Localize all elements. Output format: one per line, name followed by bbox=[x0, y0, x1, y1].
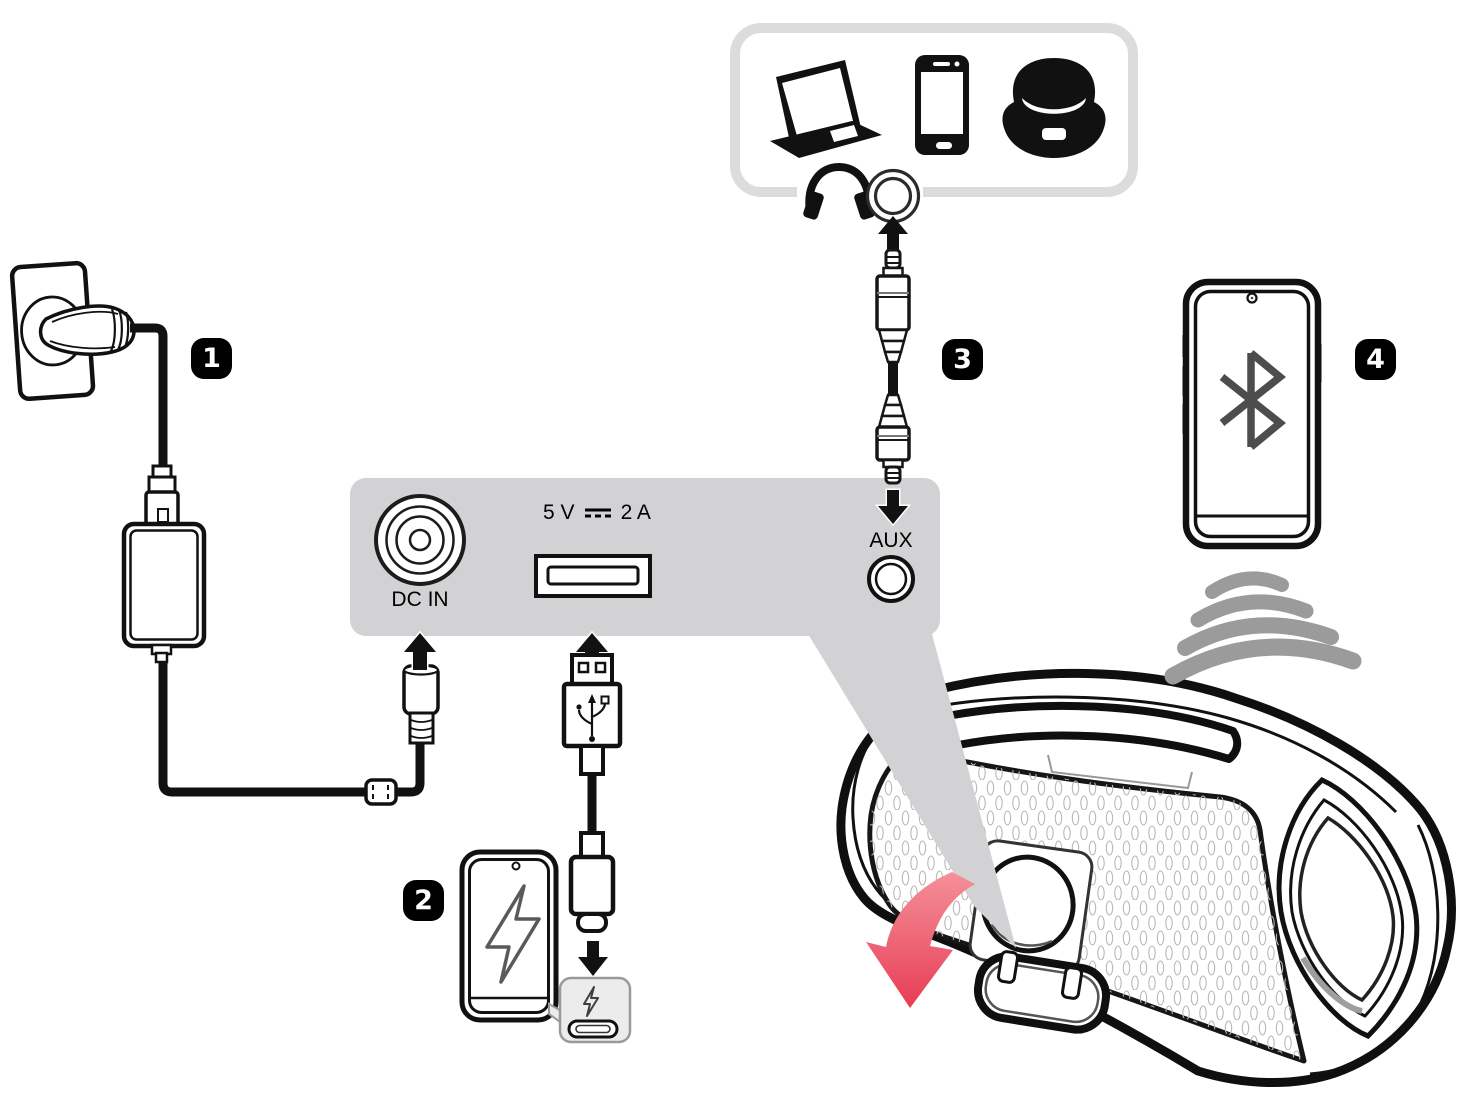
dc-in-label: DC IN bbox=[370, 588, 470, 612]
usb-port bbox=[536, 556, 650, 596]
usb-rating-label: 5 V 2 A bbox=[517, 501, 677, 525]
aux-label: AUX bbox=[856, 529, 926, 553]
aux-plug-bottom bbox=[877, 395, 909, 483]
diagram-artwork bbox=[0, 0, 1465, 1105]
step-badge-3: 3 bbox=[942, 339, 983, 380]
power-adapter-icon bbox=[124, 466, 204, 662]
dc-symbol-icon bbox=[583, 506, 613, 520]
usb-rating-volts: 5 V bbox=[543, 501, 575, 525]
aux-port bbox=[869, 557, 913, 601]
usb-rating-amps: 2 A bbox=[621, 501, 651, 525]
step-badge-2: 2 bbox=[403, 880, 444, 921]
power-plug-icon bbox=[41, 306, 134, 354]
usb-c-arrow-icon bbox=[578, 941, 608, 976]
sound-waves-icon bbox=[1173, 578, 1353, 676]
usb-a-plug-icon bbox=[564, 655, 620, 774]
bluetooth-phone bbox=[1183, 282, 1322, 546]
power-cable-lower bbox=[163, 661, 420, 792]
charging-phone bbox=[460, 852, 558, 1020]
aux-jack-icon bbox=[868, 171, 919, 222]
charge-port-callout bbox=[549, 978, 630, 1042]
step-badge-1: 1 bbox=[191, 338, 232, 379]
aux-cable bbox=[877, 216, 909, 483]
aux-plug-top bbox=[877, 250, 909, 362]
ferrite-bead bbox=[366, 780, 396, 804]
smartphone-icon bbox=[915, 55, 969, 155]
source-devices-box bbox=[735, 28, 1133, 222]
step-badge-4: 4 bbox=[1355, 339, 1396, 380]
power-cable-upper bbox=[130, 328, 163, 470]
speaker-connection-diagram: 1 2 3 4 5 V 2 A DC IN AUX bbox=[0, 0, 1465, 1105]
usb-charging-chain bbox=[460, 655, 631, 1042]
usb-c-plug-icon bbox=[571, 833, 613, 931]
jack-arrow-icon bbox=[878, 216, 908, 252]
dc-in-port bbox=[376, 496, 464, 584]
